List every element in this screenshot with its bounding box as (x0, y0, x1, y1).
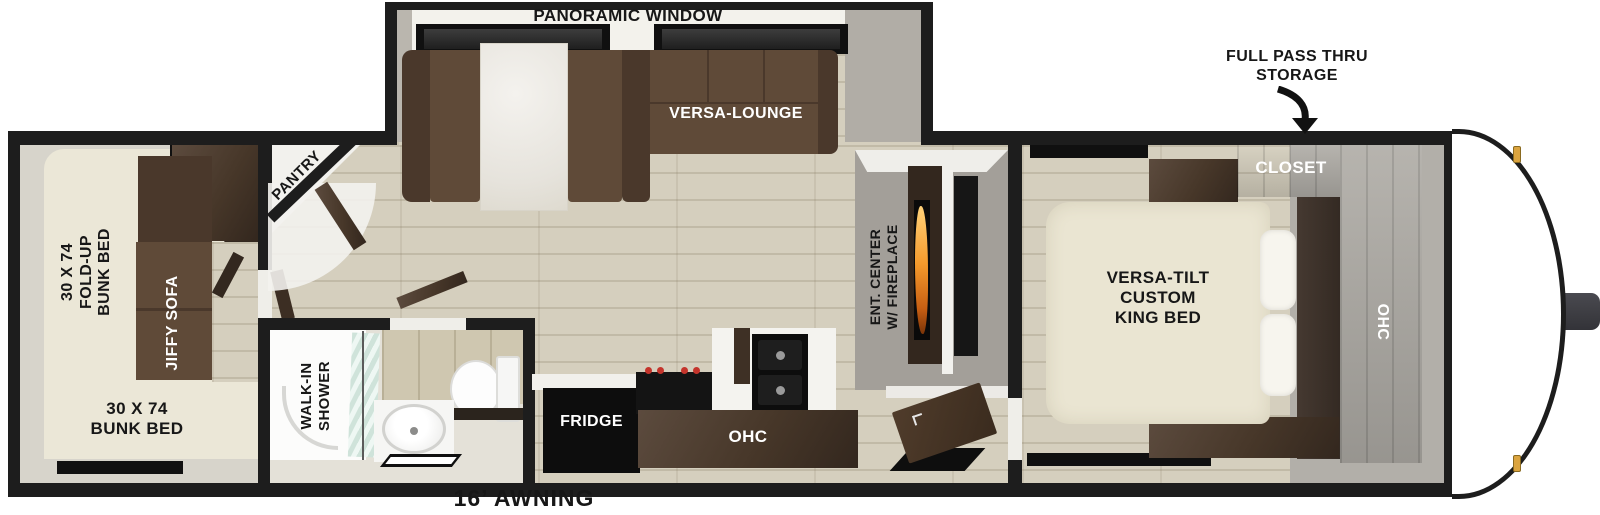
label-closet: CLOSET (1243, 158, 1339, 178)
callout-arrow (1272, 86, 1332, 134)
stove-knob (657, 367, 664, 374)
sink-side-panel (734, 328, 750, 384)
exterior-wall-bottom (8, 483, 1454, 497)
bathroom-doorway (390, 318, 466, 330)
jiffy-sofa-back (138, 156, 212, 242)
label-fold-up-bunk-bed: 30 X 74 FOLD-UP BUNK BED (57, 217, 117, 327)
lounge-table (480, 43, 568, 211)
label-full-pass-thru-storage: FULL PASS THRU STORAGE (1197, 46, 1397, 88)
sink-drain (776, 351, 785, 360)
cushion-seam (763, 50, 765, 102)
label-versa-lounge: VERSA-LOUNGE (650, 104, 822, 124)
stove-knob (693, 367, 700, 374)
shower-door-rod (362, 331, 364, 460)
stove-knob (681, 367, 688, 374)
bedroom-overhead-cabinet (1149, 159, 1238, 204)
front-cap (1452, 129, 1566, 499)
label-jiffy-sofa: JIFFY SOFA (163, 268, 183, 378)
bath-mat (380, 454, 462, 467)
stove-cooktop (636, 372, 712, 414)
window-glass (662, 29, 840, 49)
lounge-armrest-mid (622, 50, 650, 202)
rv-floorplan-canvas: PANORAMIC WINDOW 30 X 74 FOLD-UP BUNK BE… (0, 0, 1600, 515)
lounge-seat-right (568, 50, 622, 202)
fireplace-flame (915, 206, 928, 334)
bathroom-wall-right (523, 318, 535, 497)
label-kitchen-ohc: OHC (638, 426, 858, 448)
sink-drain (410, 427, 418, 435)
marker-light (1513, 146, 1521, 163)
stove-knob (645, 367, 652, 374)
label-awning: 16’ AWNING (404, 485, 644, 513)
bedroom-doorway (1008, 398, 1022, 460)
label-panoramic-window: PANORAMIC WINDOW (468, 7, 788, 25)
lounge-seat-left (430, 50, 480, 202)
exterior-wall-left (8, 131, 20, 497)
ent-center-shelf (942, 170, 953, 374)
window (57, 461, 183, 474)
label-fridge: FRIDGE (543, 412, 640, 432)
bathroom-counter (450, 408, 523, 420)
sink-drain (776, 386, 785, 395)
lounge-chaise (650, 50, 822, 154)
label-king-bed: VERSA-TILT CUSTOM KING BED (1046, 266, 1270, 330)
door-handle (912, 413, 925, 426)
lounge-armrest-right (818, 50, 838, 154)
label-walk-in-shower: WALK-IN SHOWER (295, 348, 337, 444)
window (1030, 145, 1148, 158)
label-bunk-bed: 30 X 74 BUNK BED (57, 398, 217, 440)
label-ent-center: ENT. CENTER W/ FIREPLACE (866, 212, 902, 342)
tv-panel (954, 176, 978, 356)
kitchen-sink (752, 334, 808, 410)
lounge-armrest-left (402, 50, 430, 202)
slideout-side-shade-right (845, 10, 921, 142)
label-bedroom-ohc: OHC (1372, 292, 1392, 352)
marker-light (1513, 455, 1521, 472)
cushion-seam (707, 50, 709, 102)
